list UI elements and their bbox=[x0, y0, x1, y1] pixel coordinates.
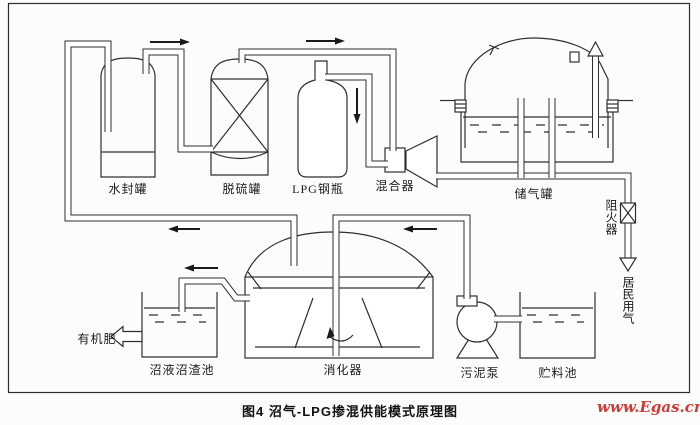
flow-arrow-right-waterseal bbox=[150, 39, 190, 46]
pipe-waterseal-to-desulfurizer bbox=[146, 52, 213, 149]
gas-storage-tank-shape bbox=[440, 38, 633, 162]
label-sludge-pump: 污泥泵 bbox=[460, 364, 499, 381]
label-feedstock-pool: 贮料池 bbox=[538, 364, 577, 381]
figure-canvas: 水封罐 脱硫罐 LPG钢瓶 混合器 储气罐 阻火器 居民用气 有机肥 沼液沼渣池… bbox=[0, 0, 700, 425]
flame-arrester-icon bbox=[621, 203, 636, 223]
figure-caption: 图4 沼气-LPG掺混供能模式原理图 bbox=[242, 401, 458, 420]
pipe-digester-overflow-to-pool bbox=[182, 281, 250, 312]
sludge-pump-shape bbox=[457, 296, 498, 358]
flow-arrow-left-feed bbox=[403, 226, 437, 233]
flow-arrow-right-desulfurizer bbox=[306, 38, 345, 45]
label-mixer: 混合器 bbox=[375, 177, 414, 194]
label-gas-storage-tank: 储气罐 bbox=[514, 185, 553, 202]
label-lpg-cylinder: LPG钢瓶 bbox=[292, 180, 344, 197]
watermark-text: www.Egas.cn bbox=[597, 398, 700, 416]
label-residential-gas: 居民用气 bbox=[621, 276, 635, 324]
dome-vent-box bbox=[570, 52, 579, 62]
label-flame-arrester: 阻火器 bbox=[604, 199, 618, 235]
down-arrow-icon-residential bbox=[620, 258, 636, 271]
flow-arrow-left-biogas bbox=[168, 226, 200, 233]
label-organic-fertilizer: 有机肥 bbox=[77, 330, 116, 347]
label-desulfurizer-tank: 脱硫罐 bbox=[222, 180, 261, 197]
label-digester: 消化器 bbox=[323, 361, 362, 378]
label-slurry-residue-pool: 沼液沼渣池 bbox=[149, 361, 214, 378]
up-arrow-icon-gasholder bbox=[588, 42, 603, 56]
label-water-seal-tank: 水封罐 bbox=[108, 180, 147, 197]
desulfurizer-tank-shape bbox=[211, 59, 268, 175]
flow-arrow-down-lpg bbox=[354, 88, 361, 124]
feedstock-pool-shape bbox=[520, 292, 595, 358]
flow-arrow-left-overflow bbox=[184, 265, 218, 272]
